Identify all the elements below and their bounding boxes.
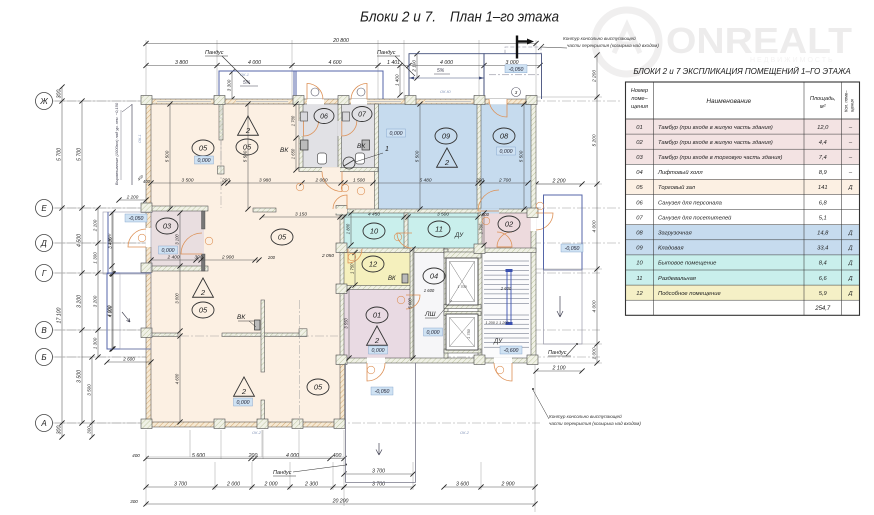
svg-text:4 000: 4 000: [592, 300, 598, 312]
svg-text:Выравнивание (1000мм) над ур.: Выравнивание (1000мм) над ур. зем. −0,15…: [114, 102, 119, 185]
svg-text:2 200: 2 200: [592, 70, 598, 83]
svg-text:6,8: 6,8: [819, 200, 828, 206]
svg-text:04: 04: [636, 170, 642, 176]
svg-text:05: 05: [278, 233, 287, 242]
svg-text:щения: щения: [850, 98, 855, 112]
svg-text:10: 10: [370, 227, 379, 236]
svg-text:Лифтовый холл: Лифтовый холл: [657, 169, 703, 176]
svg-text:Д: Д: [847, 276, 852, 282]
svg-text:06: 06: [636, 200, 643, 206]
svg-text:ОК-1: ОК-1: [138, 134, 142, 143]
svg-text:07: 07: [358, 112, 367, 119]
svg-text:5,9: 5,9: [819, 291, 828, 297]
svg-text:3 500: 3 500: [87, 384, 92, 396]
svg-text:1 401: 1 401: [387, 60, 400, 66]
svg-text:Д: Д: [40, 239, 47, 248]
svg-text:5 600: 5 600: [408, 298, 413, 309]
svg-text:3 500: 3 500: [181, 178, 193, 184]
svg-text:3 000: 3 000: [175, 293, 180, 304]
svg-text:-0,050: -0,050: [375, 389, 390, 395]
svg-text:2 300: 2 300: [304, 482, 318, 488]
svg-text:14,8: 14,8: [817, 230, 829, 236]
svg-text:Подсобное помещение: Подсобное помещение: [658, 291, 721, 297]
svg-text:Санузел для посетителей: Санузел для посетителей: [658, 214, 732, 221]
svg-text:12,0: 12,0: [817, 125, 829, 131]
svg-text:Кол. поме–: Кол. поме–: [844, 90, 849, 112]
svg-text:В: В: [41, 326, 47, 335]
svg-text:2: 2: [374, 336, 380, 345]
svg-text:ОК-Ю: ОК-Ю: [440, 89, 451, 94]
svg-text:0,000: 0,000: [500, 149, 513, 155]
svg-text:0,000: 0,000: [390, 131, 403, 137]
svg-text:5,1: 5,1: [819, 215, 827, 221]
svg-text:05: 05: [314, 383, 323, 392]
svg-text:300: 300: [482, 212, 490, 217]
svg-text:3 700: 3 700: [372, 469, 385, 475]
svg-text:ОК-1: ОК-1: [240, 72, 249, 77]
svg-text:400: 400: [333, 453, 342, 459]
svg-text:200: 200: [248, 453, 258, 459]
svg-text:400: 400: [132, 453, 140, 458]
svg-text:2 700: 2 700: [498, 178, 511, 184]
svg-text:1 400: 1 400: [395, 74, 400, 86]
svg-text:Д: Д: [847, 261, 852, 267]
svg-text:5 500: 5 500: [415, 150, 420, 162]
svg-text:части перекрытия (козырька над: части перекрытия (козырька над входом): [549, 421, 641, 426]
svg-text:06: 06: [320, 114, 328, 121]
svg-text:Загрузочная: Загрузочная: [658, 230, 692, 236]
svg-text:щения: щения: [631, 104, 648, 110]
svg-text:1 500: 1 500: [353, 178, 365, 184]
svg-text:-0,050: -0,050: [509, 67, 524, 73]
svg-text:5 480: 5 480: [419, 178, 431, 184]
svg-text:400: 400: [143, 179, 151, 184]
svg-text:Бытовое помещение: Бытовое помещение: [658, 261, 717, 267]
svg-text:Д: Д: [847, 230, 852, 236]
svg-text:НЕДВИЖИМОСТЬ: НЕДВИЖИМОСТЬ: [750, 57, 835, 64]
svg-text:02: 02: [505, 220, 514, 229]
svg-text:04: 04: [430, 272, 438, 281]
svg-text:33,4: 33,4: [817, 246, 828, 252]
svg-text:1 300: 1 300: [93, 252, 98, 264]
svg-text:3 200: 3 200: [77, 295, 83, 308]
svg-text:Контур консольно выступающей: Контур консольно выступающей: [563, 35, 636, 41]
svg-text:141: 141: [818, 185, 828, 191]
svg-text:7,4: 7,4: [819, 155, 827, 161]
svg-text:3 500: 3 500: [437, 212, 449, 218]
svg-text:2 400: 2 400: [166, 255, 179, 261]
svg-text:0,000: 0,000: [237, 400, 250, 406]
svg-text:08: 08: [500, 132, 509, 141]
svg-text:План 1–го этажа: План 1–го этажа: [450, 9, 559, 26]
svg-text:Номер: Номер: [631, 88, 648, 94]
svg-text:2 100: 2 100: [552, 366, 566, 372]
svg-text:Кладовая: Кладовая: [658, 246, 684, 252]
svg-text:-0,050: -0,050: [565, 246, 580, 252]
svg-text:ДУ: ДУ: [454, 233, 464, 239]
svg-text:4 600: 4 600: [175, 373, 180, 384]
svg-text:3 600: 3 600: [456, 482, 469, 488]
svg-text:2 100: 2 100: [93, 219, 98, 232]
svg-text:ОК-2: ОК-2: [252, 430, 262, 435]
svg-text:1 750: 1 750: [350, 263, 355, 274]
svg-text:1: 1: [385, 146, 389, 153]
svg-text:Д: Д: [847, 185, 852, 191]
svg-text:5 200: 5 200: [592, 134, 598, 146]
svg-text:2 000: 2 000: [314, 178, 327, 184]
svg-text:2: 2: [200, 288, 206, 297]
svg-text:Раздевальная: Раздевальная: [658, 276, 696, 282]
svg-text:Пандус: Пандус: [548, 350, 567, 356]
svg-text:300: 300: [194, 255, 202, 261]
svg-text:1 300: 1 300: [93, 337, 98, 349]
svg-text:4 000: 4 000: [108, 305, 113, 317]
svg-text:1 700: 1 700: [291, 115, 296, 126]
svg-text:2 100: 2 100: [412, 60, 417, 73]
svg-text:ВК: ВК: [280, 147, 289, 154]
svg-text:ВК: ВК: [388, 276, 396, 282]
svg-text:поме–: поме–: [631, 96, 648, 102]
svg-text:300: 300: [57, 90, 63, 99]
svg-text:Тамбур (при входе в жилую част: Тамбур (при входе в жилую часть здания): [658, 140, 773, 146]
svg-text:ВК: ВК: [357, 143, 366, 150]
svg-text:Площадь,: Площадь,: [810, 96, 836, 102]
svg-text:части перекрытия (козырька над: части перекрытия (козырька над входом): [567, 43, 659, 48]
svg-text:4 000: 4 000: [592, 220, 598, 232]
svg-text:4 000: 4 000: [440, 60, 453, 66]
svg-text:3 700: 3 700: [174, 482, 187, 488]
svg-text:2 050: 2 050: [321, 253, 334, 259]
svg-text:12: 12: [636, 291, 643, 297]
svg-text:Д: Д: [847, 246, 852, 252]
svg-text:2: 2: [444, 158, 450, 167]
svg-text:01: 01: [373, 311, 381, 320]
svg-text:2 000: 2 000: [226, 482, 240, 488]
svg-text:Тамбур (при входе в жилую част: Тамбур (при входе в жилую часть здания): [658, 125, 773, 131]
svg-text:09: 09: [442, 132, 451, 141]
svg-text:2 200: 2 200: [126, 195, 139, 200]
svg-text:11: 11: [435, 225, 443, 234]
svg-text:3 550: 3 550: [344, 318, 349, 329]
svg-text:2: 2: [245, 126, 251, 135]
svg-text:300: 300: [87, 426, 92, 434]
svg-text:05: 05: [199, 306, 208, 315]
svg-text:03: 03: [163, 222, 172, 231]
svg-text:ОК-2: ОК-2: [460, 430, 470, 435]
svg-text:10: 10: [636, 261, 643, 267]
svg-text:1 700: 1 700: [457, 285, 467, 289]
svg-text:-0,600: -0,600: [504, 348, 519, 354]
svg-text:ВК: ВК: [237, 314, 246, 321]
svg-text:08: 08: [636, 230, 643, 236]
svg-text:Е: Е: [41, 204, 47, 213]
svg-text:ONREALT: ONREALT: [666, 20, 852, 61]
svg-text:200: 200: [475, 178, 484, 184]
svg-text:5%: 5%: [437, 68, 445, 74]
svg-text:2 200: 2 200: [552, 179, 566, 185]
svg-text:2 600: 2 600: [122, 357, 135, 362]
svg-text:3 800: 3 800: [175, 60, 188, 66]
svg-text:4 450: 4 450: [368, 212, 380, 218]
svg-text:4,4: 4,4: [819, 140, 827, 146]
svg-text:0,000: 0,000: [198, 158, 211, 164]
svg-text:3 100: 3 100: [175, 234, 180, 245]
svg-text:07: 07: [636, 215, 643, 221]
svg-text:Ж: Ж: [39, 97, 48, 106]
svg-text:01: 01: [636, 125, 642, 131]
svg-text:Пандус: Пандус: [273, 470, 292, 476]
svg-text:200: 200: [267, 255, 276, 260]
svg-text:2: 2: [241, 387, 247, 396]
svg-text:8,4: 8,4: [819, 261, 827, 267]
svg-text:-0,050: -0,050: [129, 216, 144, 222]
svg-text:Санузел для персонала: Санузел для персонала: [658, 200, 723, 206]
svg-text:20 200: 20 200: [332, 499, 349, 505]
svg-text:3 500: 3 500: [77, 370, 83, 383]
svg-text:12: 12: [369, 260, 378, 269]
svg-text:0,000: 0,000: [427, 330, 440, 336]
svg-text:2 000: 2 000: [264, 482, 278, 488]
svg-text:5 500: 5 500: [243, 150, 248, 162]
svg-text:5 600: 5 600: [192, 453, 205, 459]
svg-text:17 100: 17 100: [57, 307, 63, 323]
svg-text:254,7: 254,7: [814, 306, 831, 312]
svg-text:8,9: 8,9: [819, 170, 828, 176]
svg-text:3 980: 3 980: [259, 178, 271, 184]
svg-text:1 200 1 1 200: 1 200 1 1 200: [485, 321, 509, 325]
svg-text:300: 300: [130, 499, 138, 504]
svg-text:0,000: 0,000: [372, 348, 385, 354]
svg-text:1 650: 1 650: [291, 148, 296, 159]
svg-text:20 800: 20 800: [332, 38, 349, 44]
svg-text:1 700: 1 700: [479, 223, 484, 234]
svg-text:09: 09: [636, 246, 643, 252]
svg-text:Блоки 2 и 7.: Блоки 2 и 7.: [360, 9, 436, 26]
svg-text:4 600: 4 600: [329, 60, 342, 66]
svg-text:3 400: 3 400: [108, 237, 113, 249]
svg-text:Б: Б: [41, 353, 46, 362]
svg-text:А: А: [40, 419, 46, 428]
svg-text:0,000: 0,000: [162, 248, 175, 254]
svg-text:2 600: 2 600: [500, 286, 512, 291]
svg-text:Наименование: Наименование: [706, 98, 751, 105]
svg-text:БЛОКИ 2 и 7 ЭКСПЛИКАЦИЯ ПОМ: БЛОКИ 2 и 7 ЭКСПЛИКАЦИЯ ПОМЕЩЕНИЙ 1–ГО Э…: [633, 67, 850, 76]
svg-text:5%: 5%: [243, 80, 251, 86]
svg-text:Пандус: Пандус: [377, 50, 396, 56]
svg-text:1 000: 1 000: [592, 347, 598, 359]
svg-text:2 900: 2 900: [221, 255, 234, 261]
svg-text:2 900: 2 900: [501, 482, 515, 488]
svg-text:1 750: 1 750: [467, 328, 471, 338]
svg-text:05: 05: [636, 185, 643, 191]
svg-text:Тамбур (при входе в торговую ч: Тамбур (при входе в торговую часть здани…: [658, 155, 783, 161]
svg-text:1 800: 1 800: [346, 223, 351, 234]
svg-text:Пандус: Пандус: [205, 50, 224, 56]
svg-text:1 600: 1 600: [424, 288, 435, 293]
svg-text:11: 11: [636, 276, 642, 282]
svg-text:5 500: 5 500: [165, 150, 170, 162]
svg-text:Г: Г: [42, 269, 47, 278]
svg-text:02: 02: [636, 140, 643, 146]
svg-text:Торговый зал: Торговый зал: [658, 184, 696, 191]
svg-text:6,6: 6,6: [819, 276, 828, 282]
svg-text:300: 300: [57, 426, 63, 435]
svg-text:ДУ: ДУ: [493, 339, 503, 345]
svg-text:4 000: 4 000: [286, 453, 299, 459]
svg-text:200: 200: [221, 178, 230, 184]
svg-text:4 500: 4 500: [77, 234, 83, 247]
svg-text:05: 05: [243, 143, 252, 152]
svg-text:4 000: 4 000: [248, 60, 261, 66]
svg-text:ЛШ: ЛШ: [424, 311, 435, 318]
svg-text:3 300: 3 300: [227, 79, 232, 91]
svg-text:Контур консольно выступающей: Контур консольно выступающей: [549, 413, 622, 419]
svg-text:05: 05: [199, 144, 208, 153]
svg-text:5 700: 5 700: [57, 148, 63, 161]
svg-text:03: 03: [636, 155, 643, 161]
svg-text:5 500: 5 500: [519, 150, 524, 162]
svg-text:3 200: 3 200: [93, 295, 98, 307]
svg-text:Д: Д: [847, 291, 852, 297]
svg-text:3 150: 3 150: [295, 212, 307, 218]
svg-text:5 700: 5 700: [77, 148, 83, 161]
